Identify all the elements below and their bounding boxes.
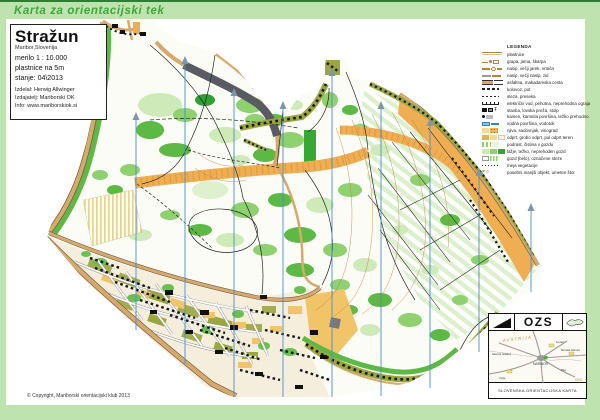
ozs-subtitle: SLOVENSKA ORIENTACIJSKA KARTA — [489, 383, 586, 397]
legend-label: posebni manjši objekt, umeten štor — [507, 170, 575, 175]
wall-symbol-icon — [482, 75, 507, 77]
legend-item: odprt, grobo odprt, pol odprt teren — [482, 134, 584, 141]
legend-item: plastnice — [482, 52, 584, 59]
undergrowth-symbol-icon — [482, 142, 507, 147]
author-text: Izdelal: Herwig Allwinger — [15, 88, 106, 94]
legend-label: vodna površina, vodotok — [507, 121, 555, 126]
banner-title: Karta za orientacijski tek — [14, 5, 164, 17]
objects-symbol-icon: ×○ — [482, 170, 507, 175]
map-title: Stražun — [15, 28, 106, 45]
legend-label: električni vod, pehotna, neprehodna ogra… — [507, 101, 590, 106]
banner: Karta za orientacijski tek — [0, 2, 600, 19]
contour-symbol-icon — [482, 52, 507, 57]
map-subtitle: Maribor,Slovenija — [15, 46, 106, 52]
legend-item: grapa, jama, škarpa — [482, 58, 584, 65]
state-text: stanje: 04\2013 — [15, 75, 106, 82]
legend: LEGENDA plastnicegrapa, jama, škarpanasi… — [482, 44, 584, 176]
ozs-map-label-maribor: MARIBOR — [533, 362, 549, 366]
legend-item: Ŧstavba, lovska preža, stolp — [482, 107, 584, 114]
ozs-logo-text: OZS — [515, 314, 562, 330]
ozs-header: OZS — [489, 314, 586, 331]
legend-item: nasip, večji nasip, zid — [482, 72, 584, 79]
legend-item: njiva, sadovnjak, vinograd — [482, 127, 584, 134]
copyright-text: © Copyright, Mariborski orientacijski kl… — [27, 393, 130, 399]
legend-label: odprt, grobo odprt, pol odprt teren — [507, 135, 573, 140]
contour-interval-text: plastnice na 5m — [15, 65, 106, 72]
vegboundary-symbol-icon — [482, 165, 507, 166]
ozs-map-label-lenart: Lenart — [556, 340, 564, 344]
legend-label: nasip, večji nasip, zid — [507, 73, 549, 78]
legend-item: kolovoz, pot — [482, 86, 584, 93]
building-symbol-icon: Ŧ — [482, 108, 507, 113]
ozs-locator-map: AVSTRIJA MARIBOR Slovenj Gradec Lenart M… — [489, 331, 586, 383]
legend-label: njiva, sadovnjak, vinograd — [507, 128, 558, 133]
path-symbol-icon — [482, 96, 507, 97]
north-arrow-icon — [528, 203, 535, 211]
farm-symbol-icon — [482, 128, 507, 133]
water-symbol-icon — [482, 122, 507, 126]
roads-symbol-icon — [482, 80, 507, 85]
legend-label: stavba, lovska preža, stolp — [507, 108, 559, 113]
legend-item: meja vegetacije — [482, 162, 584, 169]
earth2-symbol-icon — [482, 67, 507, 71]
legend-item: vodna površina, vodotok — [482, 120, 584, 127]
legend-label: asfaltna, makadamska cesta — [507, 80, 563, 85]
title-box: Stražun Maribor,Slovenija merilo 1 : 10.… — [10, 24, 107, 120]
legend-item: električni vod, pehotna, neprehodna ogra… — [482, 100, 584, 107]
legend-title: LEGENDA — [507, 44, 584, 49]
open-symbol-icon — [482, 135, 507, 140]
legend-label: grapa, jama, škarpa — [507, 59, 546, 64]
legend-item: ×○posebni manjši objekt, umeten štor — [482, 169, 584, 176]
legend-label: lažje, težko, neprehoden gozd — [507, 149, 566, 154]
ozs-map-label-murska-sobota: Murska Sobota — [561, 348, 580, 352]
forest-symbol-icon — [482, 149, 507, 154]
ozs-map-label-slovenj-gradec: Slovenj Gradec — [492, 352, 512, 356]
fence-symbol-icon — [482, 102, 507, 105]
slovenia-outline-icon — [562, 314, 586, 330]
info-text: Info: www.mariborskiok.si — [15, 104, 106, 110]
legend-label: nasip, večji jarek, vrtača — [507, 66, 554, 71]
ozs-map-label-cro: CRO — [575, 378, 583, 382]
ozs-map-label-ptuj: Ptuj — [561, 368, 566, 372]
ozs-map-label-celje: Celje — [499, 376, 506, 380]
legend-label: kamen, kamnita površina, težko prehodno — [507, 114, 589, 119]
scale-text: merilo 1 : 10.000 — [15, 55, 106, 62]
map-sheet: Stražun Maribor,Slovenija merilo 1 : 10.… — [6, 19, 585, 405]
legend-item: kamen, kamnita površina, težko prehodno — [482, 114, 584, 121]
legend-label: steza, preseka — [507, 94, 536, 99]
legend-item: nasip, večji jarek, vrtača — [482, 65, 584, 72]
legend-label: podrast, čistina v gozdu — [507, 142, 553, 147]
rock-symbol-icon — [482, 115, 507, 119]
legend-label: kolovoz, pot — [507, 87, 530, 92]
page-frame: Karta za orientacijski tek — [0, 0, 600, 420]
legend-item: lažje, težko, neprehoden gozd — [482, 148, 584, 155]
legend-item: podrast, čistina v gozdu — [482, 141, 584, 148]
ozs-map-label-austria: AVSTRIJA — [502, 334, 533, 343]
ozs-box: OZS — [488, 313, 587, 399]
publisher-text: Izdajatelj: Mariborski OK — [15, 96, 106, 102]
legend-label: gozd (belo), označene steze — [507, 156, 562, 161]
legend-item: gozd (belo), označene steze — [482, 155, 584, 162]
track-symbol-icon — [482, 88, 507, 90]
north-arrow-icon — [280, 101, 287, 109]
legend-label: plastnice — [507, 52, 524, 57]
ozs-logo-triangle-icon — [489, 314, 515, 330]
legend-label: meja vegetacije — [507, 163, 538, 168]
legend-item: asfaltna, makadamska cesta — [482, 79, 584, 86]
whiteforest-symbol-icon — [482, 156, 507, 161]
legend-item: steza, preseka — [482, 93, 584, 100]
earth-symbol-icon — [482, 60, 507, 64]
